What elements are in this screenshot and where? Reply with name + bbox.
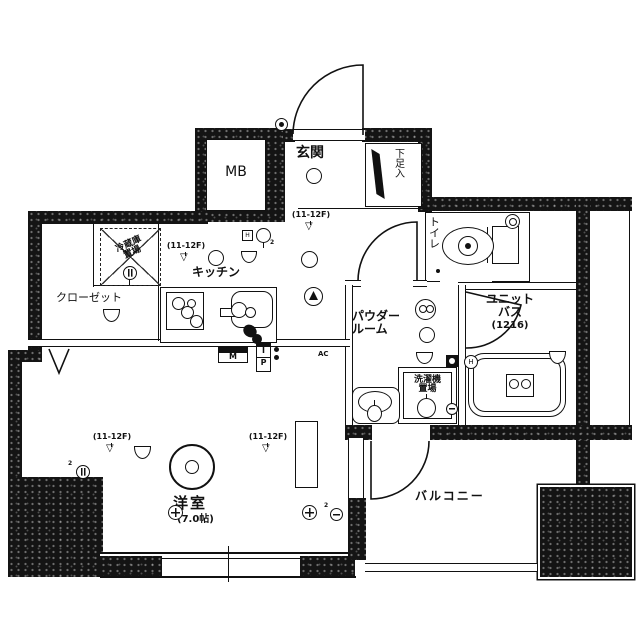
sprinkler-icon: ▽ [180,253,188,264]
closet-sconce-icon [103,309,120,322]
sprinkler-note-western-left: (11-12F) [89,433,135,441]
washbasin-faucet-stem [374,400,377,406]
kitchen-pendant-stem [263,242,266,248]
bathtub-faucet-knob [509,379,519,389]
western-outlet-icon3 [330,508,343,521]
kitchen-faucet-icon2 [245,307,256,318]
wall-balcony-divider-upper [348,438,364,500]
bath-label-line2: バス [498,305,522,319]
exhaust-fan-inner2 [426,305,434,313]
balcony-label: バルコニー [415,490,485,503]
fridge-outlet-icon [123,266,137,280]
genkan-label: 玄関 [296,146,324,161]
h-box-label: H [245,232,250,239]
ac-label: AC [318,351,329,358]
western-window-track [160,558,302,561]
sprinkler-note-kitchen: (11-12F) [163,242,209,250]
wall-outlet-icon [76,465,90,479]
kitchen-light-icon [208,250,224,266]
powder-label: パウダー ルーム [352,310,400,335]
powder-label-line2: ルーム [352,322,388,336]
powder-light-icon [419,327,435,343]
sprinkler-icon: ▽ [262,444,270,455]
balcony-floor-edge [365,563,537,572]
fridge-outlet-stem [129,279,132,285]
laundry-panel-dot [449,358,455,364]
powder-sconce-icon [416,352,433,364]
bath-size-label: (1216) [492,320,529,331]
closet-label: クローゼット [56,292,122,304]
laundry-outlet-icon [446,403,458,415]
bath-door-opening [459,292,465,346]
wall-outlet-sup: 2 [68,461,72,467]
ip-dot2 [274,355,279,360]
western-size-label: (7.0帖) [177,515,214,526]
wall-hall-powder-right [413,280,427,287]
hall-door-arc [358,222,417,281]
shoe-label: 下足入 [392,148,403,204]
kitchen-label: キッチン [192,266,240,279]
ip-label-p: P [256,359,271,367]
western-window-mullion [228,546,231,582]
entry-door-arc [293,65,363,135]
wall-right-thin [629,205,632,427]
kitchen-sconce-icon [241,251,257,263]
meter-label: M [218,353,248,361]
western-outlet-icon2 [302,505,317,520]
sprinkler-icon: ▽ [106,444,114,455]
washbasin-faucet-icon [367,405,382,422]
bath-h-icon: H [464,355,478,369]
wall-right-exterior [576,197,590,490]
doorbell-dot-icon [279,122,284,127]
laundry-faucet-icon [417,398,436,418]
wall-fridge-west [93,224,96,287]
western-outlet-sup: 2 [324,503,328,509]
bathtub-faucet-knob2 [521,379,531,389]
stove-burner-icon [190,315,203,328]
western-outlet-icon [168,505,183,520]
bath-label: ユニット バス (1216) [486,293,534,332]
entry-door-opening [293,129,365,141]
ip-label-i: I [256,347,271,355]
kitchen-pendant-icon [256,228,271,243]
western-sconce-icon [134,446,151,459]
laundry-faucet-stem [426,394,429,399]
wall-bottom-strip-left [100,556,162,576]
wall-balcony-divider-lower [348,498,366,560]
balcony-floor-edge-right [595,569,632,572]
wall-bottom-strip-mid [300,556,355,576]
wall-balcony-top-right [430,425,632,440]
kitchen-h-box: H [242,230,253,241]
wall-top-right [425,197,632,211]
balcony-pillar [540,487,632,577]
wall-kitchen-top [28,211,208,224]
ip-dot [274,347,279,352]
wall-bath-top [458,282,576,290]
wall-left-upper [28,211,42,359]
toilet-label: トイレ [428,216,440,276]
toilet-tank [492,226,519,264]
ac-unit-box [295,421,318,488]
wall-left-lower [8,350,22,488]
closet-vee-mark [49,349,69,373]
genkan-light-icon [306,168,322,184]
sprinkler-note-western-right: (11-12F) [245,433,291,441]
laundry-label: 洗濯機 置場 [403,376,452,395]
laundry-label-line2: 置場 [418,384,436,394]
sprinkler-icon: ▽ [305,222,313,233]
wall-bottom-left-block [8,477,103,577]
sprinkler-note-genkan: (11-12F) [288,211,334,219]
kitchen-pendant-sub: 2 [270,240,274,246]
bath-h-label: H [468,358,473,366]
stove-burner-icon [187,299,196,308]
floor-plan: MB 玄関 下足入 トイレ キッチン 冷蔵庫 置場 [0,0,639,640]
mb-label: MB [206,165,266,180]
toilet-sink-inner [509,218,517,226]
hall-light-icon [301,251,318,268]
toilet-hinge-dot [436,269,440,273]
western-ceiling-light-inner [185,460,199,474]
toilet-dot [465,243,471,249]
